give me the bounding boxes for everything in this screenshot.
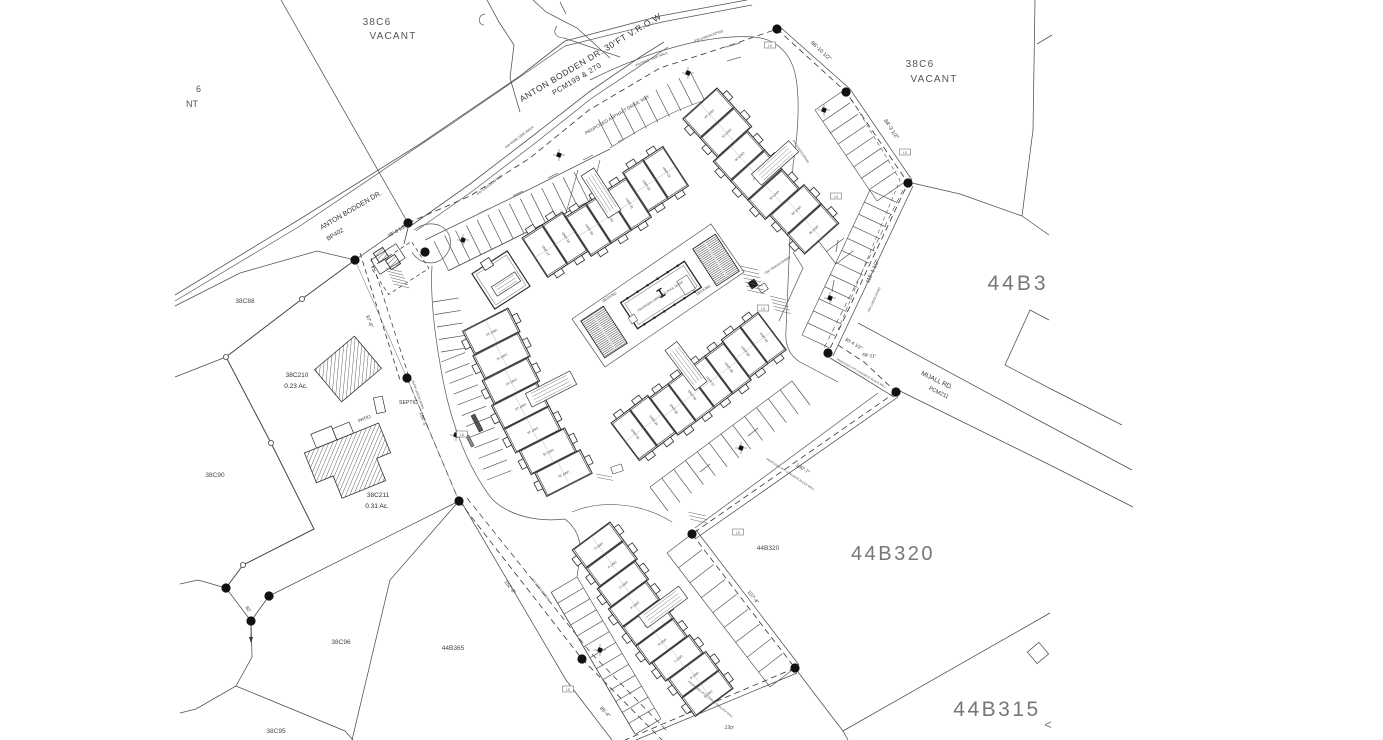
svg-text:38C6: 38C6: [363, 17, 392, 28]
svg-text:38C210: 38C210: [286, 372, 309, 379]
svg-text:38C6: 38C6: [906, 59, 935, 70]
svg-text:LS: LS: [736, 531, 740, 535]
svg-text:0.23 Ac.: 0.23 Ac.: [284, 383, 308, 390]
svg-text:38C90: 38C90: [205, 472, 225, 479]
svg-text:LS: LS: [761, 307, 765, 311]
svg-text:38C96: 38C96: [331, 639, 351, 646]
svg-text:44B365: 44B365: [442, 645, 465, 652]
svg-text:LS: LS: [768, 44, 772, 48]
svg-text:44B320: 44B320: [757, 545, 780, 552]
svg-text:38C88: 38C88: [235, 298, 255, 305]
svg-text:SEPTIC: SEPTIC: [399, 400, 418, 406]
svg-text:44B315: 44B315: [953, 698, 1040, 721]
svg-text:LS: LS: [566, 688, 570, 692]
svg-text:6: 6: [196, 84, 201, 94]
svg-text:VACANT: VACANT: [369, 31, 416, 42]
svg-text:38C211: 38C211: [367, 492, 390, 499]
svg-text:VACANT: VACANT: [910, 74, 957, 85]
svg-text:NT: NT: [186, 99, 198, 109]
svg-text:LS: LS: [460, 433, 464, 437]
svg-text:<: <: [1044, 717, 1052, 732]
svg-text:38C95: 38C95: [266, 728, 286, 735]
svg-text:LS: LS: [903, 151, 907, 155]
svg-text:44B320: 44B320: [851, 543, 935, 565]
svg-text:44B3: 44B3: [987, 272, 1048, 295]
svg-text:0.31 Ac.: 0.31 Ac.: [365, 503, 389, 510]
svg-text:LS: LS: [834, 195, 838, 199]
